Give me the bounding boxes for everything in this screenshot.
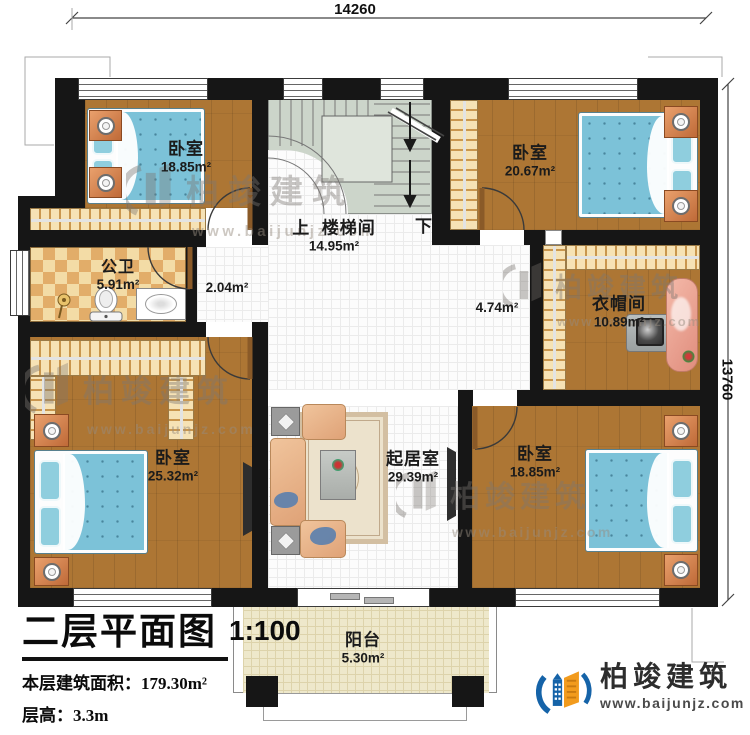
room-label-bathroom: 公卫5.91m² — [97, 259, 140, 293]
sofa — [270, 438, 306, 526]
stair-down-label: 下 — [415, 217, 433, 237]
plan-scale: 1:100 — [229, 615, 301, 647]
bed — [34, 450, 148, 554]
area-label-corridor: 2.04m² — [206, 280, 249, 296]
table-top-icon — [276, 412, 294, 430]
wall — [562, 230, 700, 245]
floor-drain — [54, 292, 72, 320]
nightstand — [664, 554, 698, 586]
wall — [524, 230, 545, 245]
nightstand — [664, 415, 698, 447]
wall — [700, 78, 718, 607]
window — [283, 78, 323, 100]
wall — [432, 98, 450, 245]
wall — [458, 390, 473, 406]
stairwell-label: 上 楼梯间 14.95m² — [292, 218, 375, 253]
lamp-icon — [97, 117, 115, 135]
brand-logo: 柏竣建筑 www.baijunjz.com — [536, 662, 745, 720]
window — [508, 78, 638, 100]
nightstand — [89, 110, 122, 141]
room-label-cloakroom: 衣帽间10.89m² — [592, 294, 646, 329]
floor-plan-canvas: 柏竣建筑 www.baijunjz.com 柏竣建筑 www.baijunjz.… — [0, 0, 750, 735]
title-underline — [22, 657, 228, 661]
dimension-top: 14260 — [325, 1, 385, 18]
plan-title: 二层平面图 — [22, 601, 217, 655]
nightstand — [34, 557, 69, 586]
brand-logo-icon — [536, 662, 592, 720]
wall — [186, 247, 197, 322]
room-label-bedroom-tl: 卧室18.85m² — [161, 139, 211, 174]
lamp-icon — [672, 113, 690, 131]
balcony-sliding-door — [297, 588, 430, 607]
floor-area-line: 本层建筑面积：179.30m² — [22, 669, 301, 694]
closet-bedroom-tl — [30, 208, 206, 232]
tv — [243, 462, 252, 536]
brand-url: www.baijunjz.com — [600, 695, 745, 711]
armchair — [302, 404, 346, 440]
side-table — [271, 526, 300, 555]
cushion-highlight — [671, 297, 691, 331]
window — [515, 588, 660, 607]
room-label-living: 起居室29.39m² — [386, 449, 440, 484]
floor-height-line: 层高：3.3m — [22, 701, 301, 726]
lamp-icon — [672, 422, 690, 440]
wall — [18, 322, 206, 337]
area-label-hall: 4.74m² — [476, 300, 519, 316]
room-label-balcony: 阳台5.30m² — [342, 630, 385, 665]
bed — [585, 449, 698, 552]
wall — [252, 98, 268, 245]
flower-vase-icon — [332, 459, 344, 471]
wall — [530, 245, 543, 390]
lamp-icon — [43, 422, 61, 440]
window — [10, 250, 30, 316]
room-label-bedroom-tr: 卧室20.67m² — [505, 143, 555, 178]
wall — [517, 390, 700, 406]
brand-name: 柏竣建筑 — [600, 662, 745, 693]
floor-hall-main — [268, 245, 530, 390]
nightstand — [34, 414, 69, 447]
cloakroom-door — [545, 230, 562, 245]
room-label-bedroom-bl: 卧室25.32m² — [148, 448, 198, 483]
table-top-icon — [276, 531, 294, 549]
title-block: 二层平面图1:100 本层建筑面积：179.30m² 层高：3.3m — [22, 601, 301, 726]
nightstand — [89, 167, 122, 198]
nightstand — [664, 106, 698, 138]
dimension-right: 13760 — [719, 350, 736, 410]
lamp-icon — [672, 197, 690, 215]
side-table — [271, 407, 300, 436]
wall — [18, 230, 206, 247]
closet-cloakroom-left — [543, 245, 566, 390]
balcony-pier — [452, 676, 484, 707]
sink — [136, 288, 186, 320]
lamp-icon — [97, 174, 115, 192]
wall — [450, 230, 480, 245]
lamp-icon — [672, 561, 690, 579]
coffee-table — [320, 450, 356, 500]
tv — [447, 447, 456, 521]
room-label-bedroom-br: 卧室18.85m² — [510, 444, 560, 479]
wall — [458, 406, 472, 588]
lamp-icon — [43, 563, 61, 581]
wall — [252, 322, 268, 588]
closet-bedroom-tr — [450, 100, 478, 230]
window — [78, 78, 208, 100]
window — [380, 78, 424, 100]
basin-icon — [145, 294, 177, 314]
closet-bedroom-bl-mid — [168, 376, 194, 440]
nightstand — [664, 190, 698, 222]
plant — [682, 350, 695, 363]
closet-bedroom-bl-top — [30, 340, 206, 376]
closet-cloakroom-top — [566, 245, 700, 270]
